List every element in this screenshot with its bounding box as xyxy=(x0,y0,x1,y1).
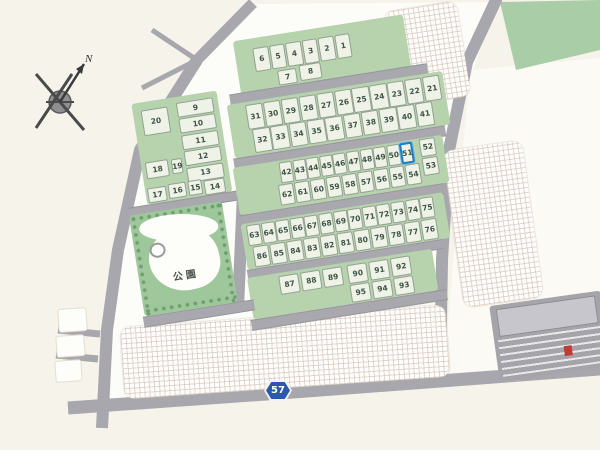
plat-map-page: { "compass": { "label": "N" }, "park": {… xyxy=(0,0,600,450)
lot-95[interactable]: 95 xyxy=(349,282,372,303)
lot-7[interactable]: 7 xyxy=(277,68,298,86)
lot-89[interactable]: 89 xyxy=(322,266,345,288)
west-block-2 xyxy=(55,334,85,358)
lot-33[interactable]: 33 xyxy=(270,124,291,150)
park: 公園 xyxy=(129,201,238,316)
lot-16[interactable]: 16 xyxy=(167,181,188,199)
lot-90[interactable]: 90 xyxy=(346,262,369,284)
west-block-1 xyxy=(57,307,88,333)
lot-53[interactable]: 53 xyxy=(421,156,440,176)
lot-17[interactable]: 17 xyxy=(147,186,168,204)
lot-88[interactable]: 88 xyxy=(300,270,323,292)
compass-north-label: N xyxy=(84,53,93,65)
lot-91[interactable]: 91 xyxy=(368,259,391,281)
building-red-marker xyxy=(564,345,573,356)
building-footprint xyxy=(489,291,600,382)
lot-15[interactable]: 15 xyxy=(187,179,204,196)
lot-94[interactable]: 94 xyxy=(371,278,394,299)
compass-rose: N xyxy=(26,50,98,142)
lot-92[interactable]: 92 xyxy=(390,255,413,277)
lot-52[interactable]: 52 xyxy=(418,137,437,157)
lot-18[interactable]: 18 xyxy=(145,159,171,179)
lot-87[interactable]: 87 xyxy=(278,273,301,295)
lot-36[interactable]: 36 xyxy=(324,115,345,141)
lot-20[interactable]: 20 xyxy=(141,106,172,136)
subdivision-plan: 公園 6543217820910111213181917161514313029… xyxy=(112,0,501,356)
route-marker: 57 xyxy=(264,380,292,401)
west-block-3 xyxy=(54,359,82,383)
lot-27[interactable]: 27 xyxy=(316,91,337,118)
lot-93[interactable]: 93 xyxy=(393,275,416,296)
